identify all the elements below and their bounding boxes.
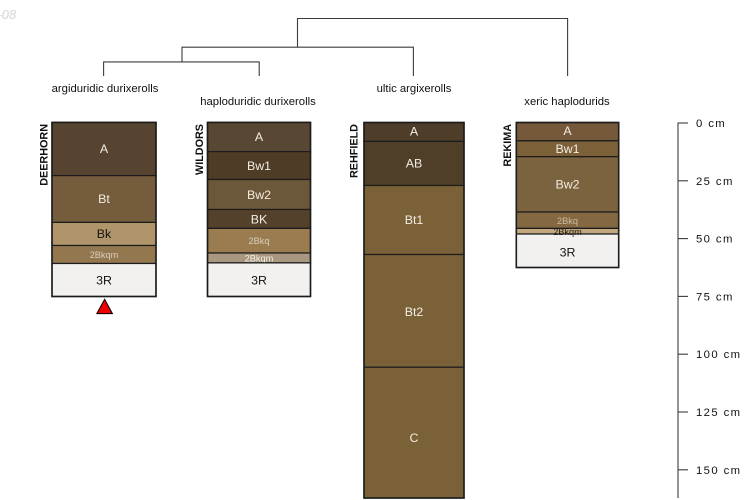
svg-text:Bw2: Bw2 [247, 188, 271, 202]
svg-text:0 cm: 0 cm [696, 118, 726, 130]
svg-text:Bk: Bk [97, 227, 112, 241]
svg-text:3R: 3R [96, 273, 112, 287]
svg-text:REKIMA: REKIMA [502, 124, 514, 167]
svg-text:Bt1: Bt1 [405, 213, 424, 227]
svg-text:A: A [563, 124, 572, 138]
svg-text:haploduridic durixerolls: haploduridic durixerolls [200, 96, 316, 108]
svg-text:Bw2: Bw2 [555, 178, 579, 192]
svg-text:2Bkqm: 2Bkqm [90, 250, 119, 260]
svg-text:REHFIELD: REHFIELD [348, 124, 360, 178]
svg-text:Bw1: Bw1 [247, 159, 271, 173]
svg-text:DEERHORN: DEERHORN [39, 124, 51, 186]
svg-text:3R: 3R [560, 245, 576, 259]
svg-text:2Bkq: 2Bkq [557, 216, 578, 226]
svg-text:2Bkqm: 2Bkqm [245, 253, 274, 263]
svg-text:50 cm: 50 cm [696, 234, 734, 246]
svg-text:2Bkqm: 2Bkqm [553, 227, 582, 237]
svg-text:2026-08: 2026-08 [0, 7, 17, 22]
svg-text:Bw1: Bw1 [555, 142, 579, 156]
svg-text:WILDORS: WILDORS [194, 124, 206, 175]
svg-text:125 cm: 125 cm [696, 407, 741, 419]
svg-text:BK: BK [251, 212, 268, 226]
svg-text:Bt: Bt [98, 192, 110, 206]
svg-text:150 cm: 150 cm [696, 465, 741, 477]
svg-text:AB: AB [406, 157, 423, 171]
svg-text:A: A [410, 124, 419, 138]
svg-text:C: C [410, 431, 419, 445]
svg-text:Bt2: Bt2 [405, 305, 424, 319]
svg-text:xeric haplodurids: xeric haplodurids [524, 96, 610, 108]
svg-text:75 cm: 75 cm [696, 291, 734, 303]
svg-text:A: A [255, 130, 264, 144]
svg-text:3R: 3R [251, 273, 267, 287]
svg-text:A: A [100, 142, 109, 156]
svg-text:ultic argixerolls: ultic argixerolls [377, 83, 452, 95]
svg-text:100 cm: 100 cm [696, 349, 741, 361]
svg-text:2Bkq: 2Bkq [249, 236, 270, 246]
svg-text:argiduridic durixerolls: argiduridic durixerolls [52, 83, 159, 95]
svg-text:25 cm: 25 cm [696, 176, 734, 188]
